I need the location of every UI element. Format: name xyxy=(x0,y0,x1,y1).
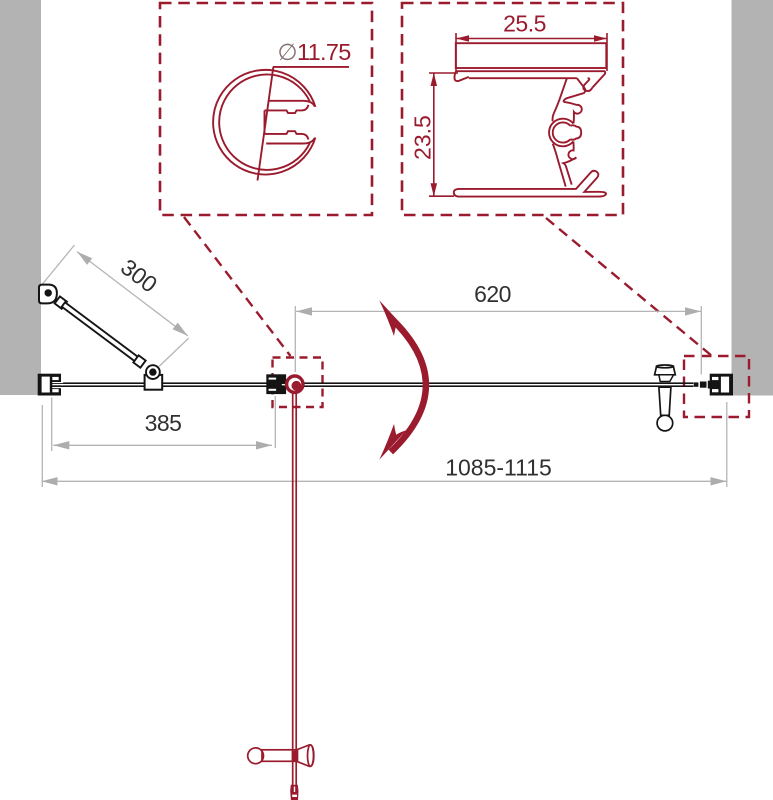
svg-text:23.5: 23.5 xyxy=(410,115,436,160)
svg-text:11.75: 11.75 xyxy=(297,39,351,65)
svg-text:∅: ∅ xyxy=(278,39,298,65)
svg-text:620: 620 xyxy=(474,281,511,307)
svg-text:25.5: 25.5 xyxy=(503,11,546,37)
svg-text:385: 385 xyxy=(145,410,182,436)
svg-text:1085-1115: 1085-1115 xyxy=(445,454,552,480)
